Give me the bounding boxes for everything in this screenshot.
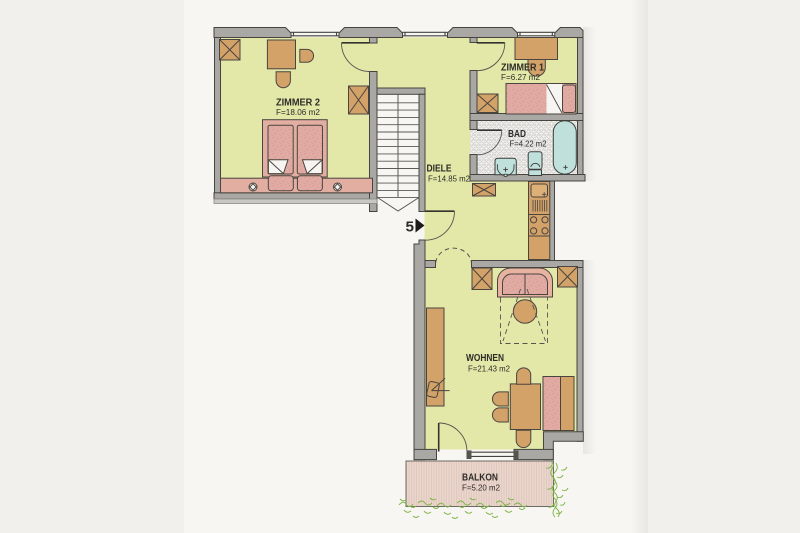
svg-text:F=4.22 m2: F=4.22 m2 — [510, 139, 547, 149]
svg-text:F=21.43 m2: F=21.43 m2 — [468, 364, 510, 374]
svg-text:F=14.85 m2: F=14.85 m2 — [428, 174, 470, 184]
svg-text:F=6.27 m2: F=6.27 m2 — [501, 72, 540, 82]
svg-text:F=18.06 m2: F=18.06 m2 — [276, 107, 320, 117]
svg-text:F=5.20 m2: F=5.20 m2 — [462, 483, 500, 493]
svg-text:WOHNEN: WOHNEN — [466, 353, 504, 364]
svg-text:5: 5 — [406, 219, 415, 236]
